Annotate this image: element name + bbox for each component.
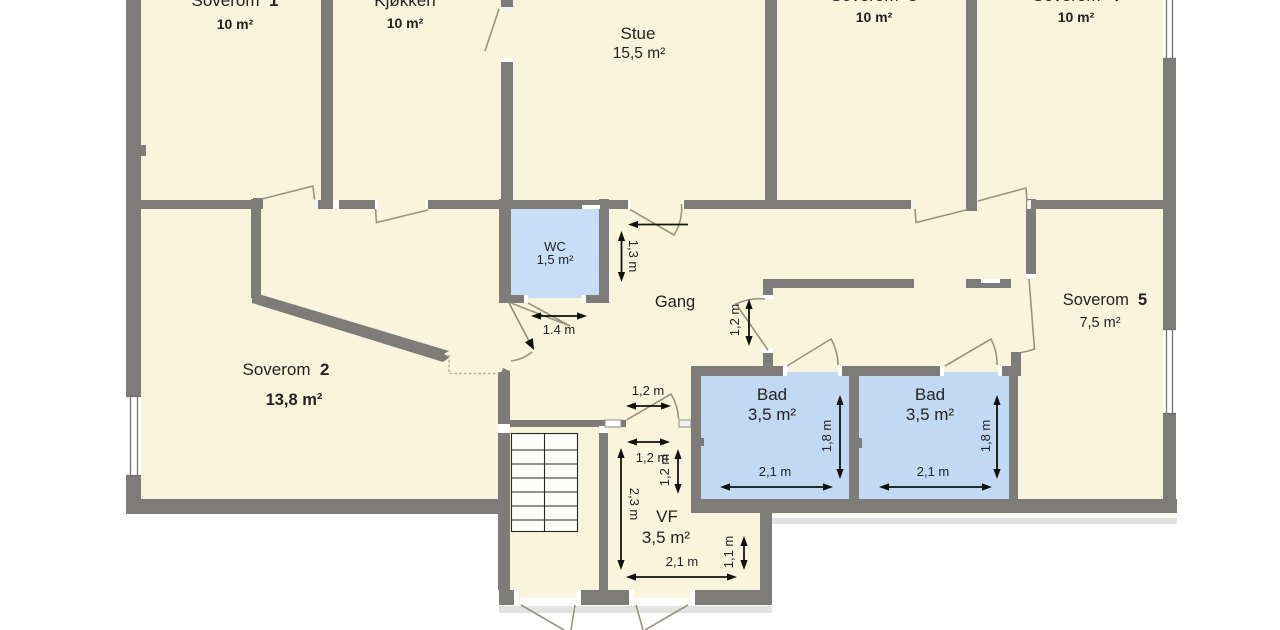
svg-text:Soverom 1: Soverom 1 <box>192 0 279 10</box>
svg-text:Bad: Bad <box>915 385 945 404</box>
svg-text:Soverom 5: Soverom 5 <box>1063 291 1147 309</box>
svg-text:3,5 m²: 3,5 m² <box>642 528 691 547</box>
svg-text:Soverom 3: Soverom 3 <box>831 0 918 5</box>
svg-text:1,3 m: 1,3 m <box>626 240 641 273</box>
svg-text:Gang: Gang <box>655 293 695 311</box>
svg-text:7,5 m²: 7,5 m² <box>1079 315 1120 331</box>
svg-text:1,2 m: 1,2 m <box>657 454 672 487</box>
svg-text:2,1 m: 2,1 m <box>759 464 792 479</box>
svg-text:10 m²: 10 m² <box>217 16 254 32</box>
svg-text:2,1 m: 2,1 m <box>666 554 699 569</box>
svg-text:13,8 m²: 13,8 m² <box>266 391 323 409</box>
svg-text:10 m²: 10 m² <box>387 15 424 31</box>
svg-text:Kjøkken: Kjøkken <box>374 0 435 10</box>
svg-text:1,8 m: 1,8 m <box>819 420 834 453</box>
svg-text:2,1 m: 2,1 m <box>917 464 950 479</box>
svg-text:Soverom 4: Soverom 4 <box>1033 0 1120 5</box>
svg-text:2,3 m: 2,3 m <box>627 488 642 521</box>
svg-text:3,5 m²: 3,5 m² <box>748 405 797 424</box>
svg-text:1,2 m: 1,2 m <box>727 304 742 337</box>
svg-text:1,2 m: 1,2 m <box>632 383 665 398</box>
svg-text:10 m²: 10 m² <box>856 9 893 25</box>
svg-text:Soverom 2: Soverom 2 <box>243 360 330 379</box>
svg-text:1,1 m: 1,1 m <box>721 536 736 569</box>
svg-text:1,8 m: 1,8 m <box>978 420 993 453</box>
svg-text:3,5 m²: 3,5 m² <box>906 405 955 424</box>
svg-text:1.4 m: 1.4 m <box>543 322 576 337</box>
svg-text:Bad: Bad <box>757 385 787 404</box>
svg-text:Stue: Stue <box>621 24 656 43</box>
svg-text:1,5 m²: 1,5 m² <box>537 252 575 267</box>
svg-text:15,5 m²: 15,5 m² <box>613 45 666 62</box>
svg-text:10 m²: 10 m² <box>1058 9 1095 25</box>
svg-text:VF: VF <box>656 507 678 526</box>
